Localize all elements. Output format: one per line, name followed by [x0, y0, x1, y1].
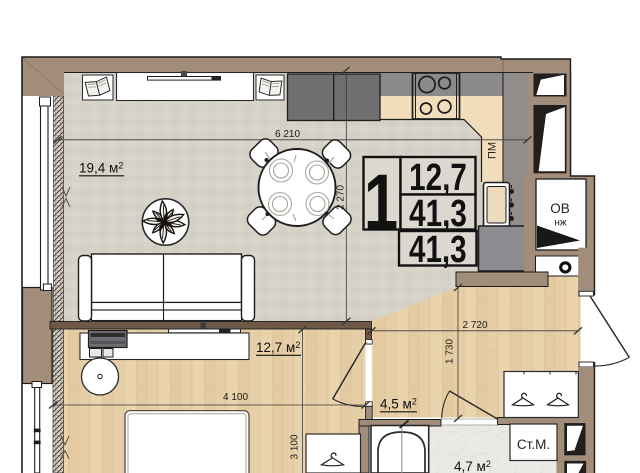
svg-text:4,5 м2: 4,5 м2 — [380, 397, 417, 412]
svg-text:41,3: 41,3 — [409, 229, 467, 271]
svg-text:4 100: 4 100 — [223, 392, 248, 403]
svg-text:2 720: 2 720 — [462, 320, 487, 331]
svg-text:ОВ: ОВ — [550, 201, 570, 216]
svg-text:1 730: 1 730 — [445, 339, 456, 364]
svg-text:1: 1 — [364, 159, 398, 247]
svg-text:6 210: 6 210 — [275, 129, 300, 140]
svg-text:2 270: 2 270 — [336, 185, 347, 210]
svg-text:4,7 м2: 4,7 м2 — [454, 459, 491, 473]
svg-text:нж: нж — [554, 218, 567, 229]
svg-text:12,7 м2: 12,7 м2 — [256, 340, 300, 355]
svg-text:ПМ: ПМ — [487, 142, 499, 159]
svg-text:Ст.М.: Ст.М. — [517, 437, 550, 452]
svg-text:3 100: 3 100 — [290, 434, 301, 459]
svg-text:19,4 м2: 19,4 м2 — [79, 161, 123, 176]
